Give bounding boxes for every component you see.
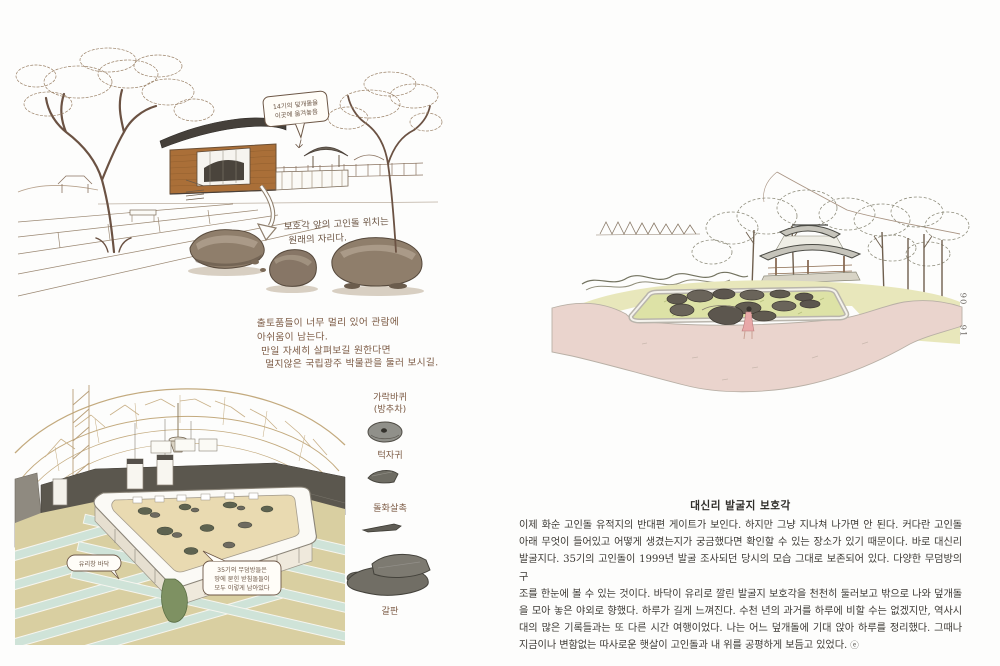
- museum-exterior-sketch: 보호각 앞의 고인돌 위치는 원래의 자리다. 14기의 덮개돌을 이곳에 옮겨…: [18, 52, 438, 304]
- grinding-slab-icon: [342, 544, 434, 600]
- article-line: 아래 무엇이 들어있고 어떻게 생겼는지가 궁금했다면 확인할 수 있는 장소가…: [519, 534, 962, 551]
- book-spread: 보호각 앞의 고인돌 위치는 원래의 자리다. 14기의 덮개돌을 이곳에 옮겨…: [0, 0, 1000, 666]
- museum-building-sketch: [160, 118, 348, 200]
- article-title: 대신리 발굴지 보호각: [519, 498, 962, 514]
- right-page: 90 91 대신리 발굴지 보호각 이제 화순 고인돌 유적지의 반대편 게이트…: [500, 0, 1000, 666]
- artifact-label-spindle-whorl-alt: (방추차): [340, 404, 440, 416]
- zigzag-treeline-sketch: [596, 222, 700, 235]
- artifact-label-arrowhead: 돌화살촉: [340, 503, 440, 515]
- stone-arrowhead-icon: [360, 522, 404, 534]
- article-line: 조를 한눈에 볼 수 있는 것이다. 바닥이 유리로 깔린 발굴지 보호각을 천…: [519, 586, 962, 603]
- artifact-label-grinding-slab: 갈판: [340, 606, 440, 618]
- article-line: 지금이나 변함없는 따사로운 햇살이 고인돌과 내 위를 공평하게 보듬고 있었…: [519, 637, 962, 655]
- article-line: 이제 화순 고인돌 유적지의 반대편 게이트가 보인다. 하지만 그냥 지나쳐 …: [519, 517, 962, 534]
- pavilion-park-sketch: [552, 168, 965, 415]
- article-line: 대의 많은 기록들과는 또 다른 시간 여행이었다. 나는 어느 덮개돌에 기대…: [519, 620, 962, 637]
- excavation-hall-sketch: 유리창 바닥 35기의 무덤방들은 땅에 묻힌 받침돌들이 모두 이렇게 남아있…: [15, 383, 345, 645]
- pavilion-sketch: [760, 225, 860, 284]
- note-line: 멀지않은 국립광주 박물관을 둘러 보시길.: [265, 356, 497, 372]
- caption-line: 보호각 앞의 고인돌 위치는: [283, 215, 389, 233]
- bubble-line: 유리창 바닥: [79, 560, 110, 568]
- article-line: 발굴지다. 35기의 고인돌이 1999년 발굴 조사되던 당시의 모습 그대로…: [519, 551, 962, 585]
- left-page: 보호각 앞의 고인돌 위치는 원래의 자리다. 14기의 덮개돌을 이곳에 옮겨…: [0, 0, 500, 666]
- spindle-whorl-icon: [363, 419, 407, 445]
- bubble-line: 모두 이렇게 남아있다: [214, 584, 269, 592]
- page-number-91: 91: [957, 325, 967, 338]
- bubble-line: 35기의 무덤방들은: [217, 566, 267, 574]
- distant-scenery-sketch: [18, 176, 98, 193]
- page-number-90: 90: [957, 293, 967, 306]
- article: 대신리 발굴지 보호각 이제 화순 고인돌 유적지의 반대편 게이트가 보인다.…: [519, 498, 962, 656]
- artifact-legend: 가락바퀴 (방추차) 턱자귀 돌화살촉 갈판: [340, 392, 440, 634]
- arrow-icon: [258, 186, 276, 240]
- article-end-mark: ⓔ: [850, 641, 858, 651]
- article-line: 을 모아 놓은 야외로 향했다. 하루가 길게 느껴진다. 수천 년의 과거를 …: [519, 603, 962, 620]
- handwritten-note: 출토품들이 너무 멀리 있어 관람에 아쉬움이 남는다. 만일 자세히 살펴보길…: [257, 315, 498, 373]
- caption-line: 원래의 자리다.: [288, 233, 347, 247]
- bubble-line: 땅에 묻힌 받침돌들이: [214, 575, 269, 583]
- stone-adze-icon: [364, 466, 404, 486]
- speech-bubble: 14기의 덮개돌을 이곳에 옮겨놓음: [262, 91, 331, 151]
- artifact-label-spindle-whorl: 가락바퀴: [340, 392, 440, 404]
- artifact-label-adze: 턱자귀: [340, 450, 440, 462]
